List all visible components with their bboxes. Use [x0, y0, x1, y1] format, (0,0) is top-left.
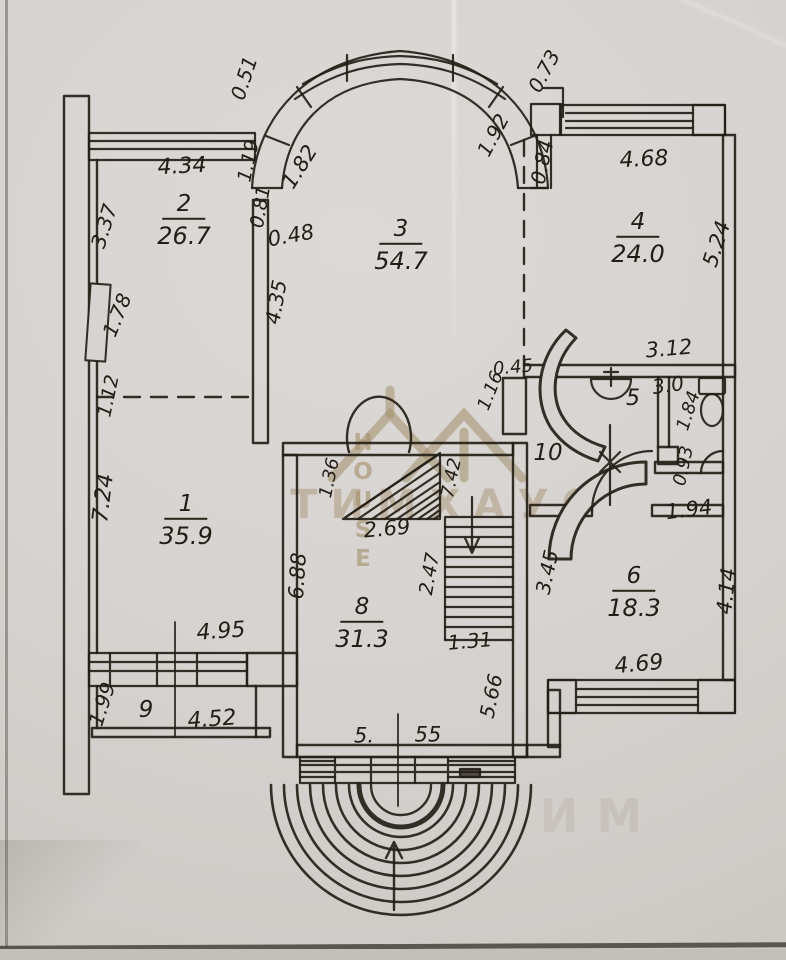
room-area: 26.7	[157, 221, 210, 251]
room-label-1: 1 35.9	[159, 491, 212, 551]
stairs-winder-triangle	[343, 453, 440, 519]
room-label-4: 4 24.0	[611, 209, 664, 269]
room-label-5: 5	[626, 388, 640, 410]
room-number: 9	[139, 697, 154, 723]
room-number: 8	[341, 594, 384, 623]
dim-7-24: 7.24	[90, 472, 118, 523]
sink-fixture	[591, 368, 631, 399]
dim-1-94: 1.94	[665, 497, 714, 524]
dim-4-14: 4.14	[714, 567, 740, 616]
room-area: 18.3	[607, 593, 660, 623]
dim-4-34: 4.34	[157, 155, 207, 180]
dim-4-95: 4.95	[196, 619, 246, 644]
dim-3-12: 3.12	[645, 337, 693, 362]
dim-1-31: 1.31	[447, 629, 493, 653]
stairs-straight-flight	[445, 497, 513, 640]
room-area: 24.0	[611, 239, 664, 269]
room-number: 2	[163, 191, 206, 220]
room-label-3: 3 54.7	[374, 216, 427, 276]
room-area: 35.9	[159, 521, 212, 551]
dim-55: 55	[415, 725, 442, 746]
room-number: 6	[613, 563, 656, 592]
room-area-5: 3.0	[651, 373, 685, 397]
dim-4-69: 4.69	[614, 652, 665, 678]
scan-edge-left	[5, 0, 8, 948]
room-area: 31.3	[335, 624, 388, 654]
room-number: 3	[380, 216, 423, 245]
toilet-fixture	[699, 378, 725, 426]
room-label-9: 9	[139, 697, 154, 723]
exterior-semicircular-steps	[271, 785, 531, 915]
room-label-10: 10	[533, 440, 562, 466]
room-number: 10	[533, 440, 562, 466]
dim-4-68: 4.68	[619, 148, 669, 173]
dim-2-69: 2.69	[363, 517, 411, 542]
room-label-6: 6 18.3	[607, 563, 660, 623]
window-band-room8-bottom	[300, 757, 515, 783]
window-band-rooms1-9	[89, 653, 247, 686]
room-area: 54.7	[374, 246, 427, 276]
scanned-floor-plan: HOUSE ТИМХАУС ИМ	[0, 0, 786, 960]
window-band-room6-bottom	[548, 680, 735, 713]
dim-6-88: 6.88	[286, 552, 310, 600]
room-label-8: 8 31.3	[335, 594, 388, 654]
dim-4-52: 4.52	[187, 707, 237, 732]
dim-5: 5.	[354, 726, 374, 747]
scan-edge-below	[0, 949, 786, 960]
room-number: 4	[617, 209, 660, 238]
room-label-2: 2 26.7	[157, 191, 210, 251]
room-number: 1	[165, 491, 208, 520]
window-band-room4-top	[560, 105, 725, 135]
